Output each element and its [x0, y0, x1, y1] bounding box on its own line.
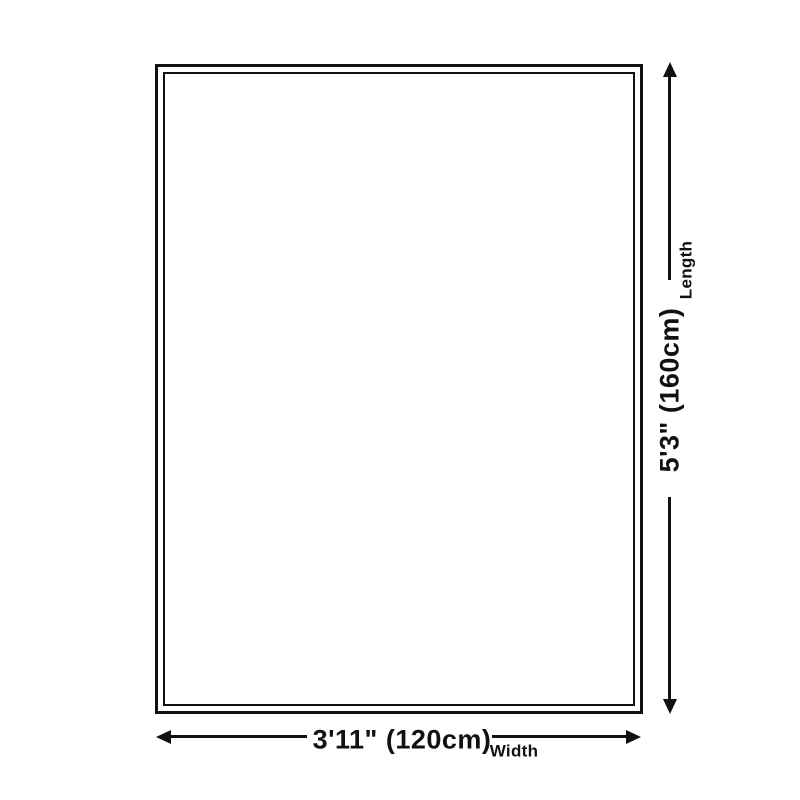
length-label: Length: [678, 241, 695, 299]
width-dimension-line-right: [492, 735, 628, 738]
rug-outline: [155, 64, 643, 714]
length-value: 5'3" (160cm): [657, 308, 684, 473]
arrow-up-icon: [663, 62, 677, 77]
length-dimension-line-lower: [668, 497, 671, 700]
rug-inner-border: [163, 72, 635, 706]
length-dimension-line-upper: [668, 76, 671, 280]
width-dimension-line-left: [170, 735, 307, 738]
dimension-diagram: Length 5'3" (160cm) 3'11" (120cm) Width: [0, 0, 800, 800]
width-label: Width: [490, 743, 539, 760]
arrow-right-icon: [626, 730, 641, 744]
arrow-left-icon: [156, 730, 171, 744]
arrow-down-icon: [663, 699, 677, 714]
width-value: 3'11" (120cm): [313, 727, 492, 754]
